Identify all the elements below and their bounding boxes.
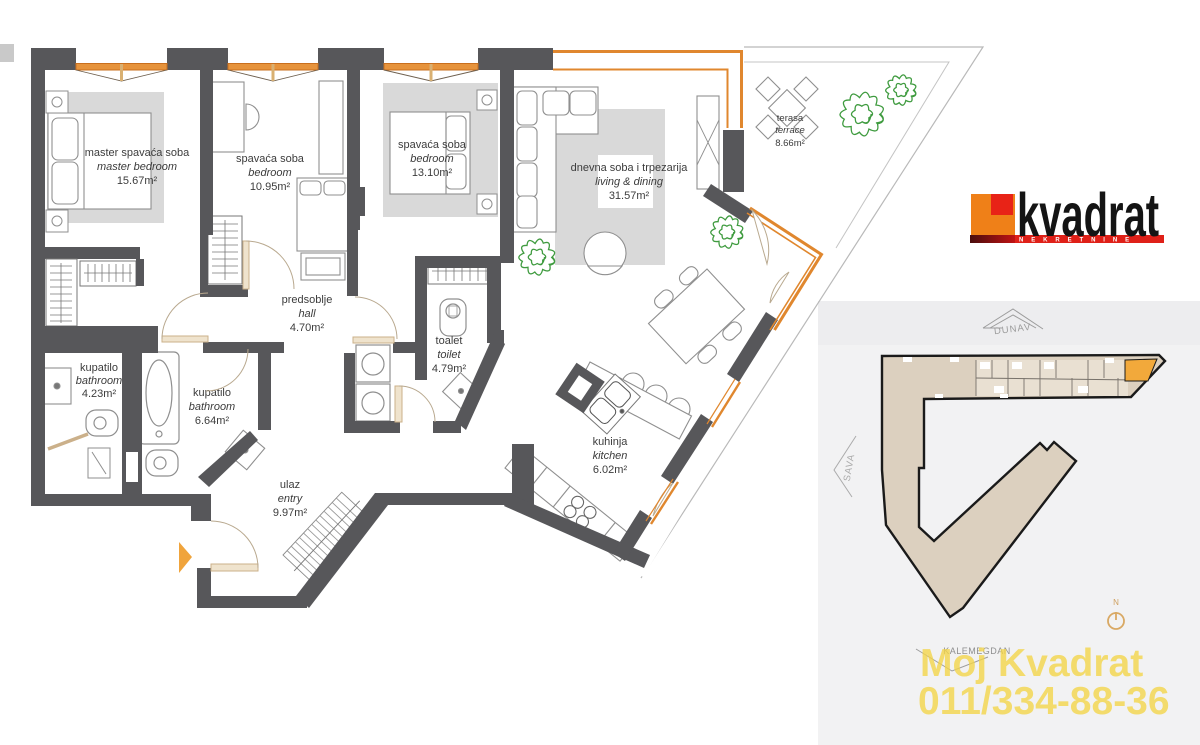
svg-text:master bedroom: master bedroom bbox=[97, 161, 177, 173]
svg-text:kvadrat: kvadrat bbox=[1017, 180, 1159, 249]
svg-text:bathroom: bathroom bbox=[189, 401, 235, 413]
svg-text:31.57m²: 31.57m² bbox=[609, 190, 650, 202]
svg-text:bedroom: bedroom bbox=[248, 167, 291, 179]
svg-text:13.10m²: 13.10m² bbox=[412, 167, 453, 179]
svg-text:Moj Kvadrat: Moj Kvadrat bbox=[920, 642, 1143, 685]
svg-text:kupatilo: kupatilo bbox=[193, 387, 231, 399]
svg-text:living & dining: living & dining bbox=[595, 176, 664, 188]
svg-text:ulaz: ulaz bbox=[280, 479, 300, 491]
svg-text:kitchen: kitchen bbox=[593, 450, 628, 462]
svg-text:10.95m²: 10.95m² bbox=[250, 181, 291, 193]
svg-text:entry: entry bbox=[278, 493, 304, 505]
svg-text:4.70m²: 4.70m² bbox=[290, 322, 325, 334]
svg-text:15.67m²: 15.67m² bbox=[117, 175, 158, 187]
svg-text:predsoblje: predsoblje bbox=[282, 294, 333, 306]
svg-text:toilet: toilet bbox=[437, 349, 461, 361]
svg-text:bedroom: bedroom bbox=[410, 153, 453, 165]
svg-text:spavaća soba: spavaća soba bbox=[398, 139, 467, 151]
svg-text:6.64m²: 6.64m² bbox=[195, 415, 230, 427]
svg-text:terasa: terasa bbox=[777, 113, 804, 124]
svg-text:terrace: terrace bbox=[775, 125, 805, 136]
svg-text:4.79m²: 4.79m² bbox=[432, 363, 467, 375]
svg-text:dnevna soba i trpezarija: dnevna soba i trpezarija bbox=[571, 162, 689, 174]
svg-text:6.02m²: 6.02m² bbox=[593, 464, 628, 476]
svg-text:spavaća soba: spavaća soba bbox=[236, 153, 305, 165]
svg-text:9.97m²: 9.97m² bbox=[273, 507, 308, 519]
svg-text:011/334-88-36: 011/334-88-36 bbox=[918, 680, 1170, 723]
svg-text:toalet: toalet bbox=[436, 335, 463, 347]
svg-text:kupatilo: kupatilo bbox=[80, 362, 118, 374]
svg-text:bathroom: bathroom bbox=[76, 375, 122, 387]
svg-text:4.23m²: 4.23m² bbox=[82, 388, 117, 400]
svg-text:N: N bbox=[1113, 598, 1119, 607]
svg-text:hall: hall bbox=[298, 308, 316, 320]
svg-text:kuhinja: kuhinja bbox=[593, 436, 629, 448]
svg-text:8.66m²: 8.66m² bbox=[775, 138, 805, 149]
svg-text:master spavaća soba: master spavaća soba bbox=[85, 147, 190, 159]
